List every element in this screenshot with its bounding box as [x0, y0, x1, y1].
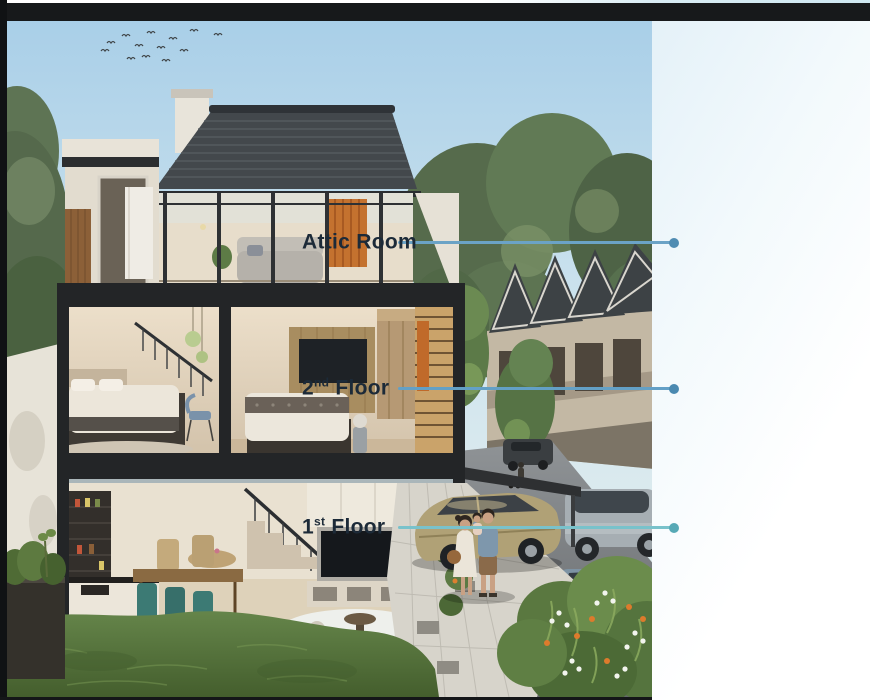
label-text: 2 — [302, 377, 314, 400]
floor-label-attic: Attic Room — [302, 230, 417, 255]
leader-dot-first-floor — [669, 523, 679, 533]
label-superscript: nd — [314, 376, 329, 390]
house-cutaway-illustration — [7, 21, 652, 697]
leader-dot-second-floor — [669, 384, 679, 394]
left-annex — [62, 139, 159, 285]
floor-label-second: 2nd Floor — [302, 376, 389, 401]
label-text: 1 — [302, 516, 314, 539]
label-superscript: st — [314, 515, 325, 529]
leader-line-first-floor — [398, 526, 674, 529]
attic-floor-band — [59, 283, 463, 307]
leader-line-attic — [398, 241, 674, 244]
label-rest: Floor — [329, 377, 389, 400]
top-bar — [0, 3, 870, 21]
leader-line-second-floor — [398, 387, 674, 390]
left-border-bar — [0, 0, 7, 700]
page: Attic Room 2nd Floor 1st Floor — [0, 0, 870, 700]
balcony-wood-screen — [415, 307, 457, 453]
second-floor-interior — [61, 307, 457, 457]
label-text: Attic Room — [302, 231, 417, 254]
floor-label-first: 1st Floor — [302, 515, 385, 540]
label-panel — [652, 21, 870, 700]
label-rest: Floor — [325, 516, 385, 539]
second-floor-band — [59, 453, 463, 479]
band-shadow-2 — [59, 479, 463, 483]
leader-dot-attic — [669, 238, 679, 248]
